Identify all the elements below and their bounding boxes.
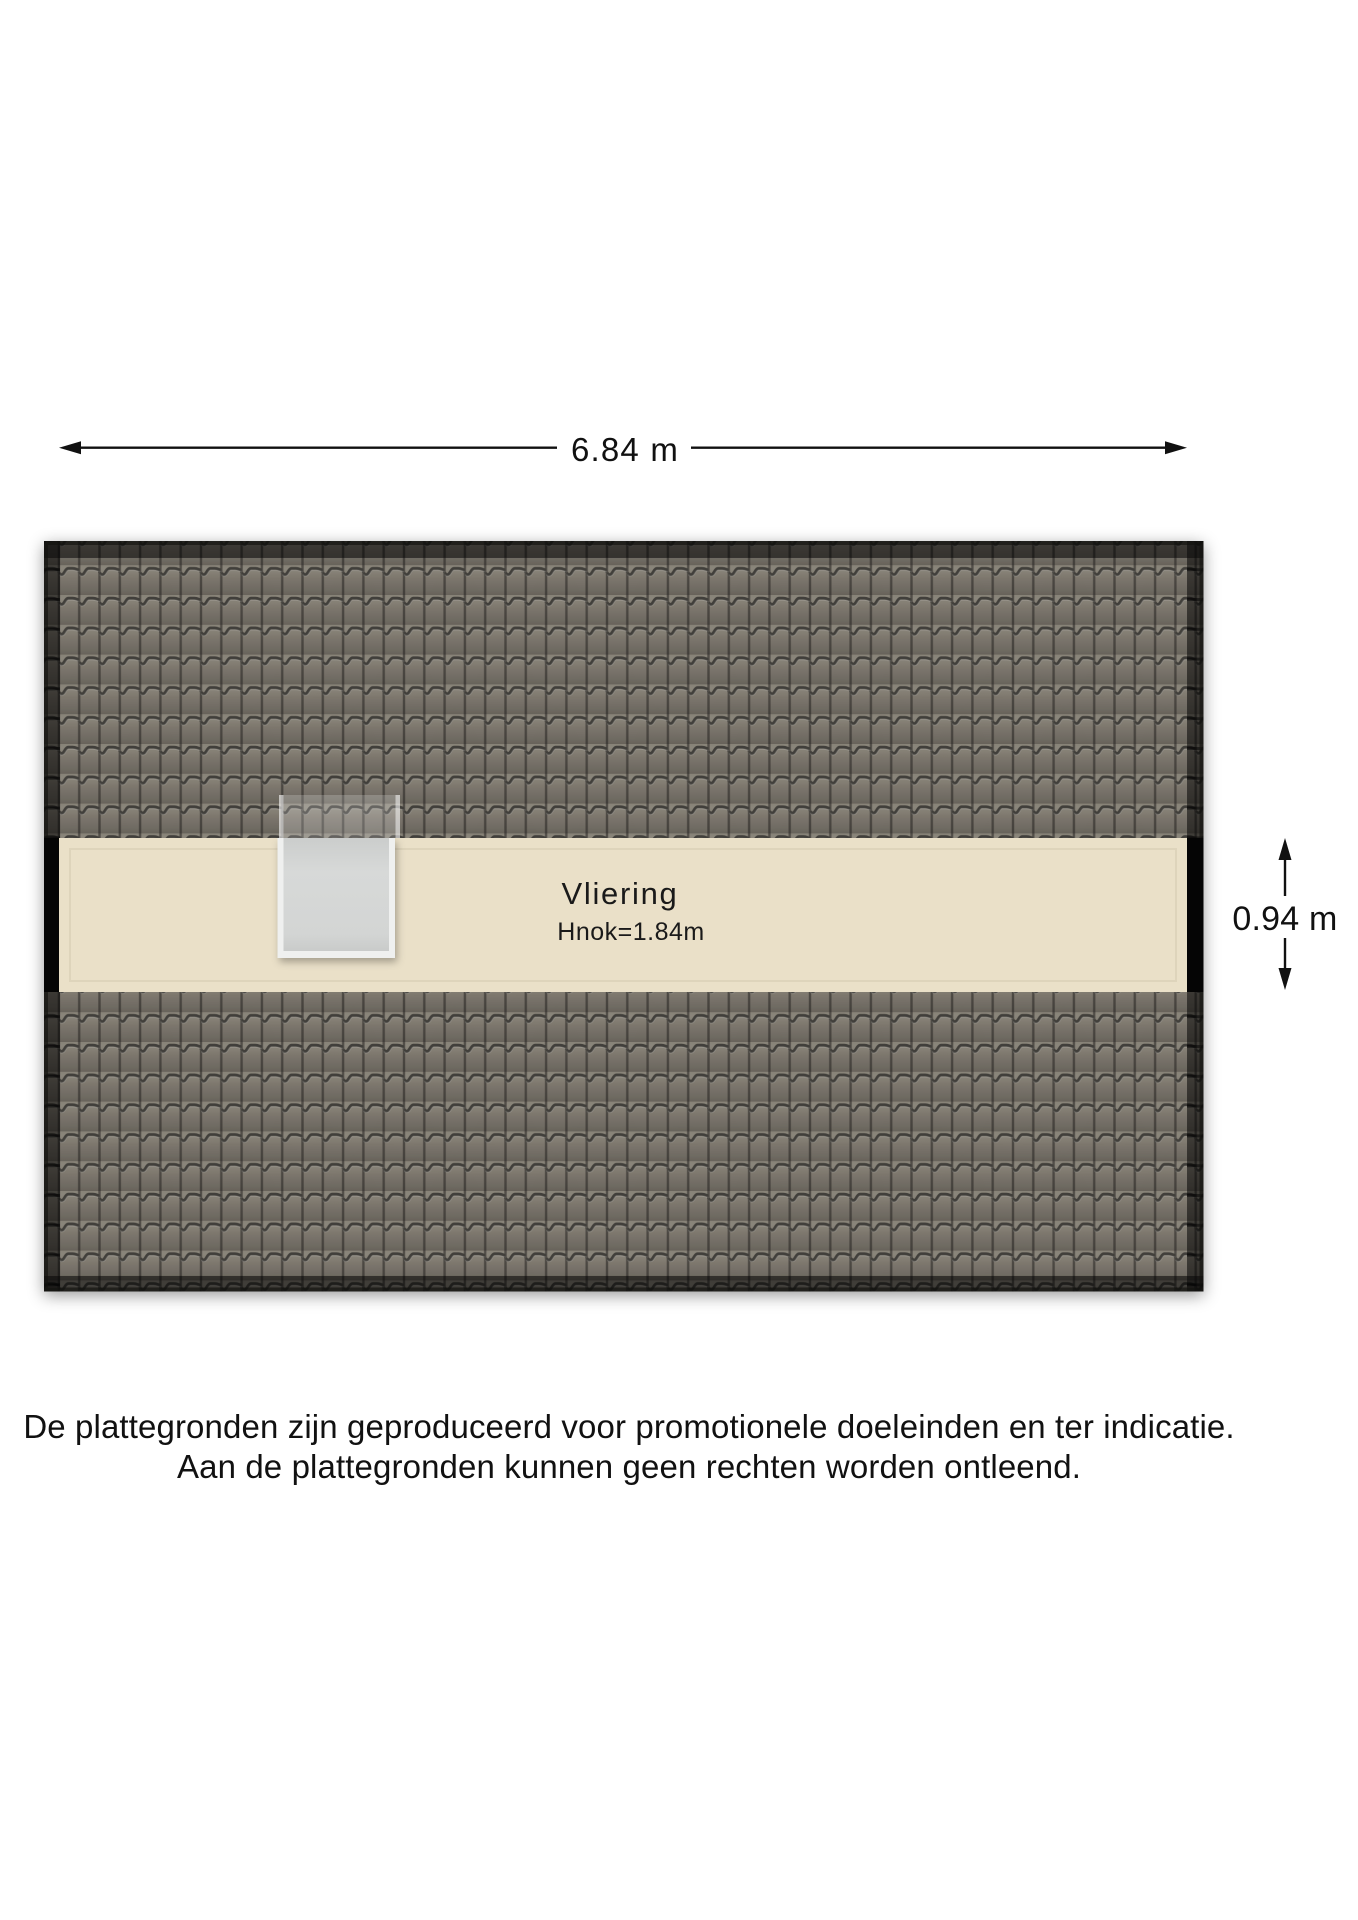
svg-text:6.84 m: 6.84 m [571, 431, 679, 468]
svg-text:Vliering: Vliering [562, 876, 679, 911]
svg-text:0.94 m: 0.94 m [1232, 900, 1337, 938]
svg-text:Hnok=1.84m: Hnok=1.84m [557, 918, 704, 946]
svg-text:De plattegronden zijn geproduc: De plattegronden zijn geproduceerd voor … [23, 1408, 1234, 1445]
svg-text:Aan de plattegronden kunnen ge: Aan de plattegronden kunnen geen rechten… [177, 1448, 1081, 1485]
